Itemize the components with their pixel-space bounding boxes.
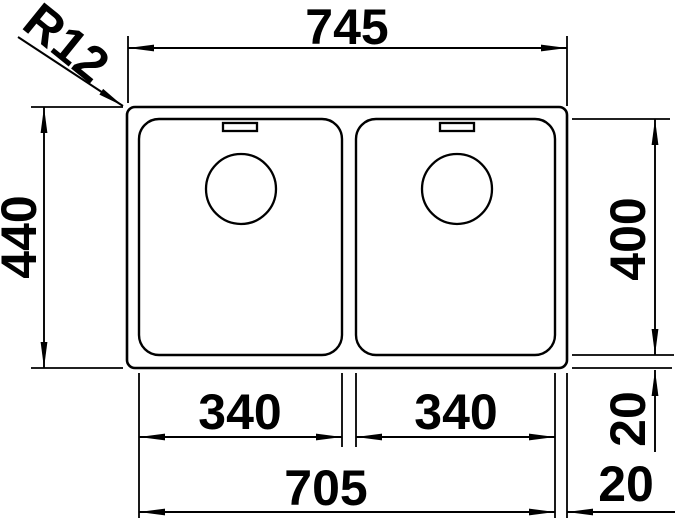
- dim-label-overall-depth: 440: [0, 195, 47, 278]
- dim-label-right-edge-gap: 20: [600, 391, 656, 447]
- dim-label-bowl-depth: 400: [600, 197, 656, 280]
- dim-label-left-bowl-width: 340: [198, 384, 281, 440]
- dim-label-overall-width: 745: [305, 0, 388, 55]
- dim-inner-span: 705: [139, 460, 555, 516]
- dim-label-inner-span: 705: [284, 460, 367, 516]
- technical-drawing: 745 440 400 20 340 340 705: [0, 0, 675, 525]
- dim-overall-depth: 440: [0, 107, 123, 368]
- dim-bowl-depth: 400: [572, 119, 674, 355]
- dim-right-edge-gap: 20: [572, 368, 672, 452]
- dim-overall-width: 745: [128, 0, 567, 106]
- dim-label-bottom-edge-gap: 20: [598, 456, 654, 512]
- right-bowl-overflow-slot: [440, 123, 474, 131]
- left-bowl-drain-circle: [206, 154, 276, 224]
- dim-right-bowl-width: 340: [356, 384, 555, 440]
- sink-outer-edge: [127, 107, 567, 368]
- dim-label-right-bowl-width: 340: [414, 384, 497, 440]
- drawing-canvas: 745 440 400 20 340 340 705: [0, 0, 675, 525]
- right-bowl-drain-circle: [422, 154, 492, 224]
- left-bowl-overflow-slot: [223, 123, 257, 131]
- dim-bottom-edge-gap: 20: [567, 456, 675, 512]
- dim-label-corner-radius: R12: [13, 0, 120, 93]
- sink-outline: [127, 107, 567, 368]
- dim-left-bowl-width: 340: [139, 384, 342, 440]
- radius-callout: R12: [13, 0, 123, 106]
